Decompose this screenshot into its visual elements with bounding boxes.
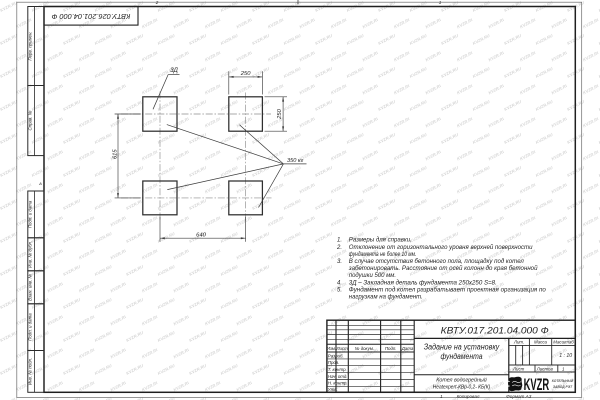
- svg-text:Лист: Лист: [512, 366, 525, 371]
- svg-text:1: 1: [440, 394, 443, 399]
- svg-text:3.: 3.: [337, 259, 342, 265]
- svg-text:350 кг: 350 кг: [287, 158, 304, 164]
- svg-text:Утв.: Утв.: [328, 387, 338, 392]
- svg-text:Масштаб: Масштаб: [553, 340, 574, 345]
- svg-text:Формат А3: Формат А3: [506, 394, 532, 399]
- svg-text:Подп.: Подп.: [385, 346, 397, 351]
- svg-text:2: 2: [155, 0, 159, 5]
- svg-text:Задание на установку: Задание на установку: [424, 343, 500, 352]
- svg-text:ЗАВОД РЭТ: ЗАВОД РЭТ: [553, 385, 573, 389]
- svg-text:КВТУ.017.201.04.000 Ф: КВТУ.017.201.04.000 Ф: [441, 326, 549, 337]
- svg-text:250: 250: [240, 71, 251, 77]
- svg-text:Дата: Дата: [401, 346, 414, 351]
- svg-text:Пров.: Пров.: [328, 360, 340, 365]
- svg-text:фундамента не более 10 мм.: фундамента не более 10 мм.: [349, 252, 417, 258]
- svg-text:Н. контр.: Н. контр.: [328, 381, 348, 386]
- svg-text:Подп. и дата: Подп. и дата: [28, 200, 33, 228]
- svg-text:4.: 4.: [337, 280, 342, 286]
- svg-text:Нач. отд.: Нач. отд.: [328, 374, 348, 379]
- svg-text:2.: 2.: [336, 245, 342, 251]
- svg-text:Размеры для справки.: Размеры для справки.: [349, 238, 412, 244]
- svg-text:640: 640: [196, 232, 206, 238]
- svg-text:Копировал: Копировал: [457, 394, 480, 399]
- svg-text:1 : 10: 1 : 10: [559, 353, 572, 359]
- svg-text:нагрузкам на фундамент.: нагрузкам на фундамент.: [349, 295, 423, 301]
- svg-text:Справ. №: Справ. №: [28, 110, 33, 130]
- svg-text:3Д – Закладная деталь фундамен: 3Д – Закладная деталь фундамента 250x250…: [349, 280, 497, 286]
- svg-text:№ докум.: № докум.: [355, 346, 374, 351]
- svg-text:Котел водогрейный: Котел водогрейный: [436, 377, 487, 384]
- svg-text:Т. контр.: Т. контр.: [328, 367, 347, 372]
- svg-text:Отклонение от горизонтального: Отклонение от горизонтального уровня вер…: [349, 244, 533, 251]
- svg-text:Разраб.: Разраб.: [328, 353, 344, 358]
- svg-text:250: 250: [277, 108, 283, 119]
- svg-text:В случае отсутствия бетонного: В случае отсутствия бетонного пола, площ…: [349, 259, 525, 265]
- svg-text:Heatexpert-КВр-0,2- КБ(К): Heatexpert-КВр-0,2- КБ(К): [433, 384, 491, 390]
- svg-text:Фундамент под котел разрабатыв: Фундамент под котел разрабатывает проект…: [349, 287, 547, 293]
- svg-text:Изм.: Изм.: [327, 346, 336, 351]
- svg-text:Инв. № дубл.: Инв. № дубл.: [28, 241, 33, 268]
- svg-text:1.: 1.: [337, 238, 342, 244]
- svg-text:подушки 500 мм.: подушки 500 мм.: [349, 273, 396, 279]
- svg-text:3Д: 3Д: [170, 67, 178, 74]
- svg-text:Лит.: Лит.: [513, 340, 524, 345]
- svg-text:Листов: Листов: [536, 366, 554, 371]
- svg-text:КВТУ.026.201.04.000 Ф: КВТУ.026.201.04.000 Ф: [51, 12, 130, 21]
- svg-text:5.: 5.: [337, 287, 342, 293]
- svg-text:Масса: Масса: [534, 340, 548, 345]
- svg-text:Подп. и дата: Подп. и дата: [28, 313, 33, 341]
- svg-text:KVZR: KVZR: [524, 376, 550, 394]
- svg-text:Лист: Лист: [335, 346, 348, 351]
- svg-text:Инв. № подл.: Инв. № подл.: [28, 358, 33, 385]
- svg-text:Взам. инв. №: Взам. инв. №: [28, 273, 33, 300]
- svg-text:фундамента: фундамента: [441, 352, 483, 361]
- svg-text:Перв. примен.: Перв. примен.: [28, 31, 33, 60]
- svg-text:А: А: [38, 181, 42, 186]
- svg-text:забетонировать. Расстояние от: забетонировать. Расстояние от осей колон…: [348, 265, 538, 272]
- svg-text:1: 1: [439, 0, 442, 5]
- svg-text:КОТЕЛЬНЫЙ: КОТЕЛЬНЫЙ: [552, 379, 574, 383]
- svg-text:615: 615: [112, 149, 118, 159]
